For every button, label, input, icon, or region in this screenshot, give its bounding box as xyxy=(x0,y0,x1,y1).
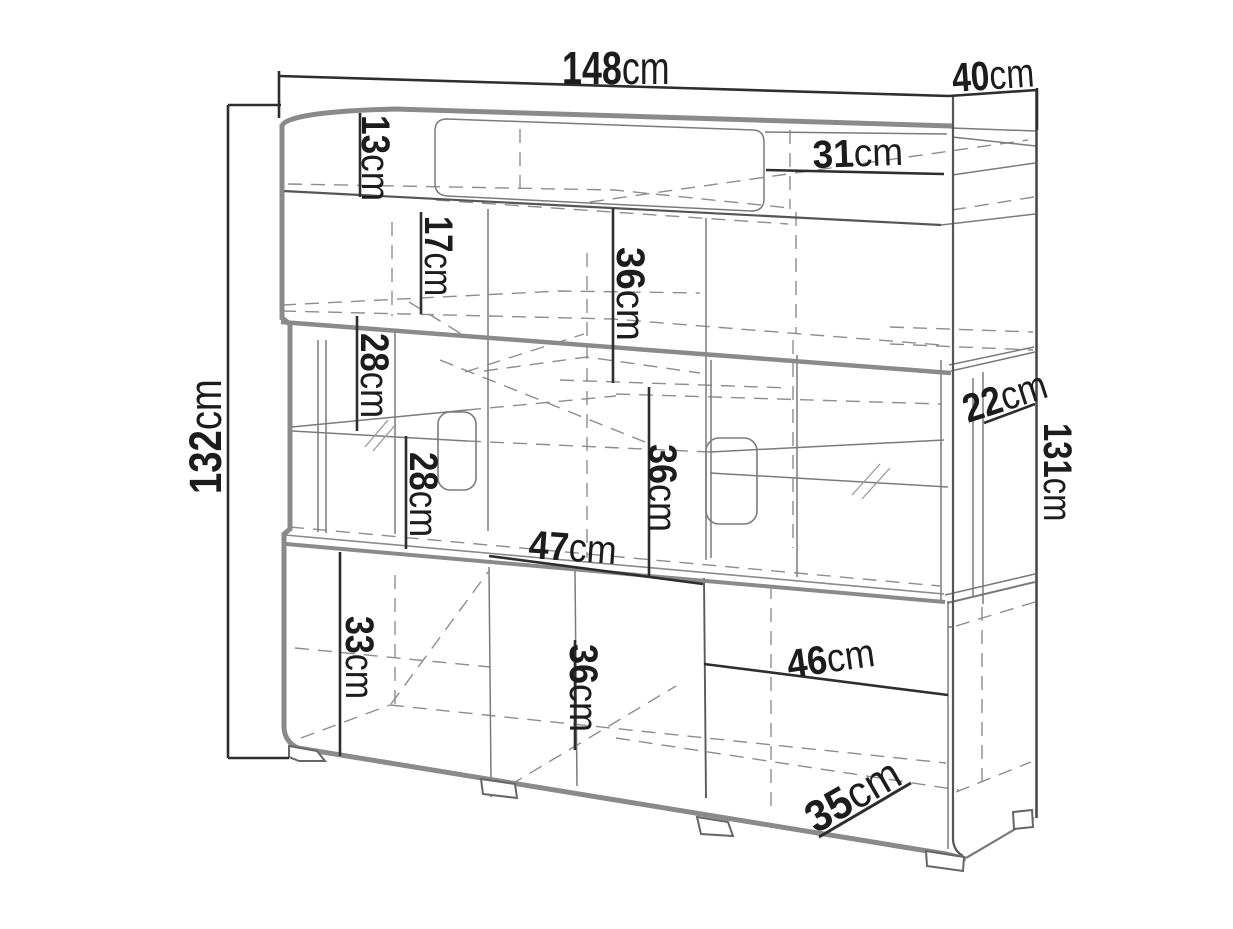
svg-text:36cm: 36cm xyxy=(608,247,652,341)
svg-text:131cm: 131cm xyxy=(1035,423,1080,521)
svg-text:33cm: 33cm xyxy=(337,616,382,699)
svg-text:13cm: 13cm xyxy=(354,115,399,201)
svg-text:28cm: 28cm xyxy=(352,333,397,418)
svg-text:17cm: 17cm xyxy=(416,216,461,296)
svg-text:36cm: 36cm xyxy=(640,444,684,532)
svg-text:36cm: 36cm xyxy=(561,644,605,732)
svg-text:28cm: 28cm xyxy=(401,452,446,537)
svg-text:148cm: 148cm xyxy=(562,43,670,94)
svg-text:31cm: 31cm xyxy=(812,131,904,177)
svg-text:132cm: 132cm xyxy=(180,379,231,494)
svg-text:47cm: 47cm xyxy=(527,523,618,573)
svg-text:40cm: 40cm xyxy=(950,49,1035,101)
